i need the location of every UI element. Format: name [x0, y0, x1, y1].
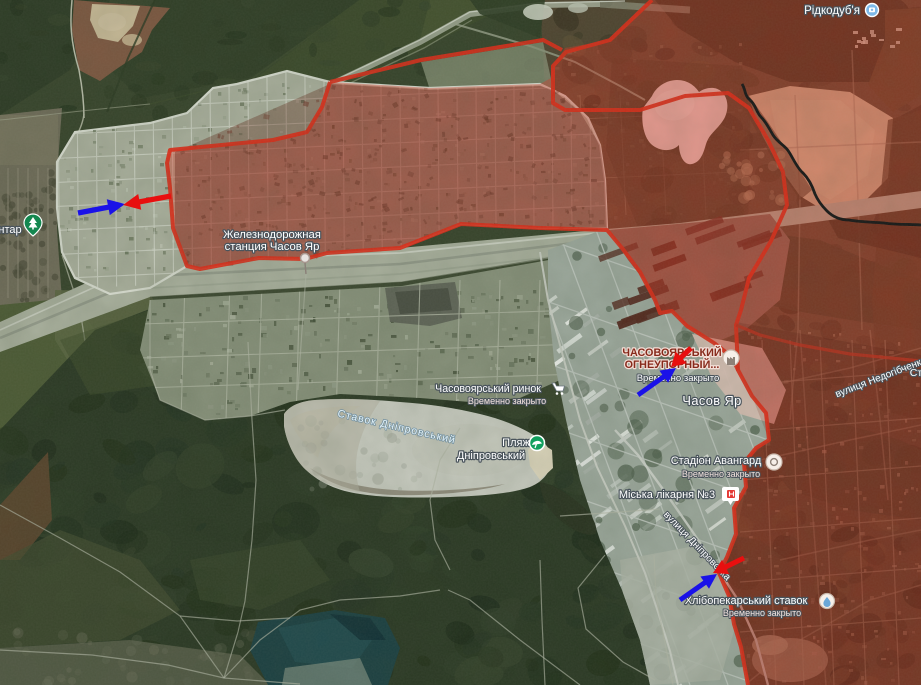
svg-text:Стадіон Авангард: Стадіон Авангард [671, 455, 762, 467]
svg-text:Временно закрыто: Временно закрыто [637, 373, 720, 384]
svg-text:Железнодорожная: Железнодорожная [223, 229, 321, 241]
svg-text:Временно закрыто: Временно закрыто [682, 469, 760, 479]
svg-text:Пляж: Пляж [502, 437, 530, 449]
svg-text:Дніпровський: Дніпровський [457, 450, 525, 462]
svg-text:Міська лікарня №3: Міська лікарня №3 [619, 489, 715, 501]
svg-text:Ст: Ст [910, 367, 921, 379]
svg-text:нтар: нтар [0, 224, 22, 236]
svg-text:станция Часов Яр: станция Часов Яр [225, 241, 320, 253]
svg-text:Хлібопекарський ставок: Хлібопекарський ставок [685, 595, 808, 607]
svg-text:Часов Яр: Часов Яр [682, 393, 741, 408]
svg-text:ЧАСОВОЯРСЬКИЙ: ЧАСОВОЯРСЬКИЙ [622, 346, 721, 359]
svg-text:Временно закрыто: Временно закрыто [723, 608, 801, 618]
svg-text:Временно закрыто: Временно закрыто [468, 396, 546, 406]
svg-text:Рідкодуб'я: Рідкодуб'я [804, 5, 860, 17]
svg-text:Часовоярський ринок: Часовоярський ринок [435, 383, 541, 395]
